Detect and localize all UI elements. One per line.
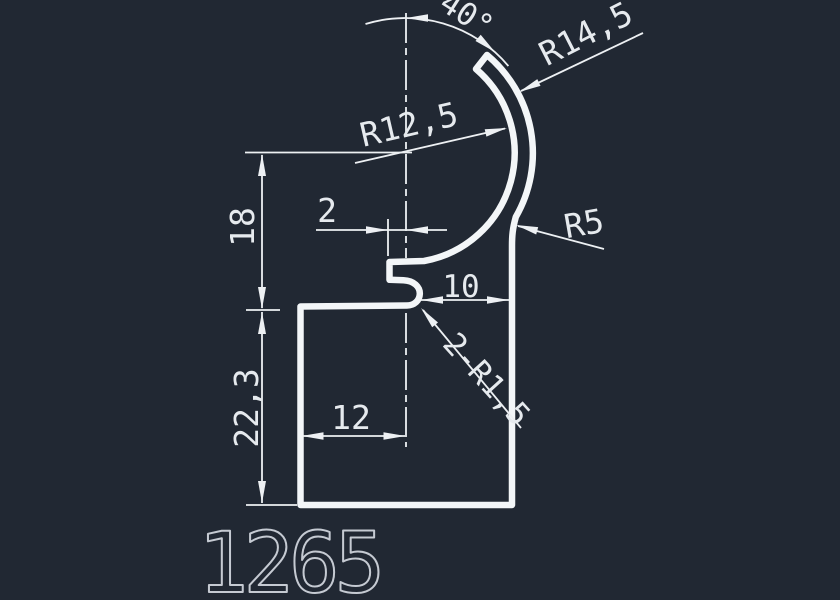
dimension-labels: 40° R14,5 R12,5 R5 2 18 10 2-R1,5 22,3 1… (223, 0, 639, 448)
dim-base-width-label: 12 (331, 398, 371, 437)
dim-outer-radius-label: R14,5 (533, 0, 639, 73)
arrow-r5 (516, 225, 538, 235)
dimension-lines (245, 18, 643, 505)
cad-drawing-canvas: 40° R14,5 R12,5 R5 2 18 10 2-R1,5 22,3 1… (0, 0, 840, 600)
dim-wall-offset-label: 2 (317, 191, 337, 230)
profile-drawing: 40° R14,5 R12,5 R5 2 18 10 2-R1,5 22,3 1… (0, 0, 840, 600)
arrow-angle-left (406, 14, 428, 22)
dim-inner-radius-label: R12,5 (356, 94, 462, 154)
arrow-22-3-bottom (258, 481, 266, 503)
dim-lip-fillets-label: 2-R1,5 (435, 326, 537, 433)
dim-slot-width-label: 10 (442, 269, 479, 305)
arrow-18-bottom (258, 287, 266, 309)
arrow-18-top (258, 154, 266, 176)
arrow-2-right (406, 226, 428, 234)
arrow-r12-5 (485, 128, 507, 137)
arrow-22-3-top (258, 312, 266, 334)
arrow-12-left (302, 432, 324, 440)
dim-lower-height-label: 22,3 (227, 368, 266, 447)
arrow-2-r1-5 (421, 308, 438, 327)
part-number: 1265 (198, 514, 380, 600)
arrow-12-right (384, 432, 406, 440)
dim-fillet-radius-label: R5 (561, 201, 607, 246)
arrow-r14-5 (519, 79, 541, 92)
arrow-2-left (366, 226, 388, 234)
arrow-10-right (487, 296, 509, 304)
arrow-10-left (421, 296, 443, 304)
dim-upper-height-label: 18 (223, 207, 262, 247)
